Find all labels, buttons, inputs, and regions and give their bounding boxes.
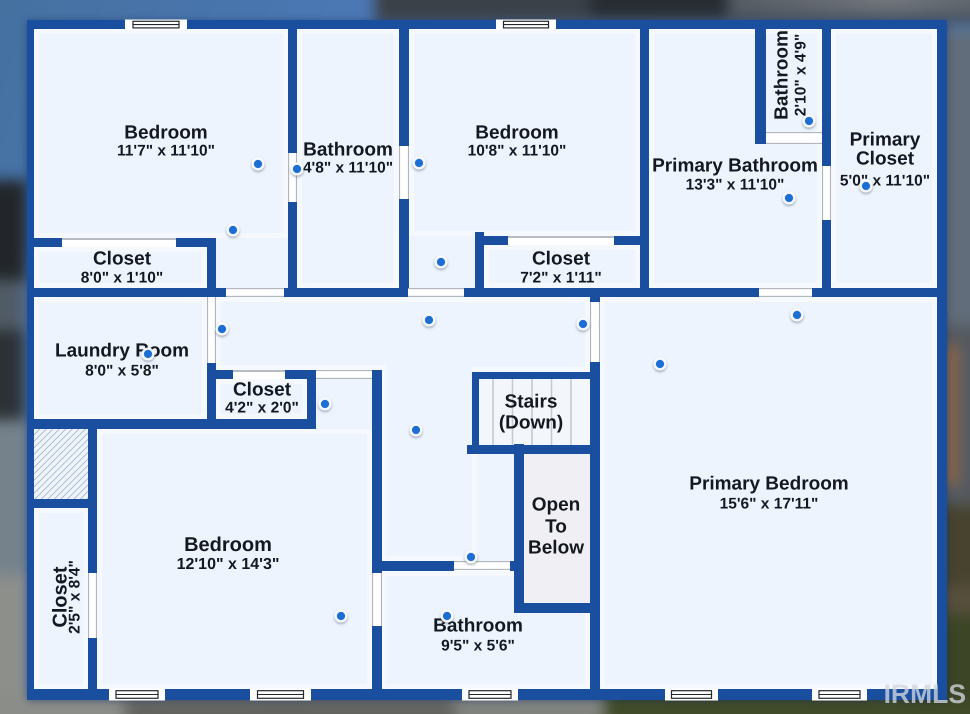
svg-text:11'7" x 11'10": 11'7" x 11'10" [117, 143, 215, 160]
svg-text:Closet: Closet [532, 249, 591, 270]
svg-text:Bathroom: Bathroom [303, 140, 393, 161]
svg-text:Bedroom: Bedroom [475, 123, 558, 144]
svg-text:Bedroom: Bedroom [184, 534, 272, 556]
svg-text:Closet: Closet [233, 380, 292, 401]
svg-text:Bathroom: Bathroom [772, 30, 793, 120]
svg-text:Laundry Room: Laundry Room [55, 341, 189, 362]
svg-text:9'5" x 5'6": 9'5" x 5'6" [441, 638, 515, 655]
svg-text:12'10" x 14'3": 12'10" x 14'3" [177, 556, 280, 573]
svg-text:5'0" x 11'10": 5'0" x 11'10" [840, 173, 930, 190]
svg-text:(Down): (Down) [499, 413, 563, 434]
svg-text:Primary Bathroom: Primary Bathroom [652, 156, 818, 177]
svg-text:Bedroom: Bedroom [124, 123, 207, 144]
svg-text:Primary Bedroom: Primary Bedroom [689, 474, 848, 495]
svg-text:Below: Below [528, 538, 584, 559]
svg-text:2'5" x 8'4": 2'5" x 8'4" [67, 560, 84, 634]
svg-text:7'2" x 1'11": 7'2" x 1'11" [520, 270, 602, 287]
svg-text:Open: Open [532, 495, 581, 516]
svg-text:Primary: Primary [850, 130, 921, 151]
svg-text:Closet: Closet [93, 249, 152, 270]
svg-text:Closet: Closet [856, 149, 915, 170]
svg-text:8'0" x 5'8": 8'0" x 5'8" [85, 363, 159, 380]
svg-text:8'0" x 1'10": 8'0" x 1'10" [81, 270, 163, 287]
svg-text:Stairs: Stairs [505, 392, 558, 413]
svg-text:15'6" x 17'11": 15'6" x 17'11" [720, 496, 819, 513]
svg-text:To: To [545, 517, 567, 538]
svg-text:4'8" x 11'10": 4'8" x 11'10" [303, 160, 393, 177]
svg-text:10'8" x 11'10": 10'8" x 11'10" [468, 143, 567, 160]
svg-text:13'3" x 11'10": 13'3" x 11'10" [686, 177, 785, 194]
svg-text:4'2" x 2'0": 4'2" x 2'0" [225, 400, 299, 417]
svg-text:2'10" x 4'9": 2'10" x 4'9" [793, 34, 810, 116]
